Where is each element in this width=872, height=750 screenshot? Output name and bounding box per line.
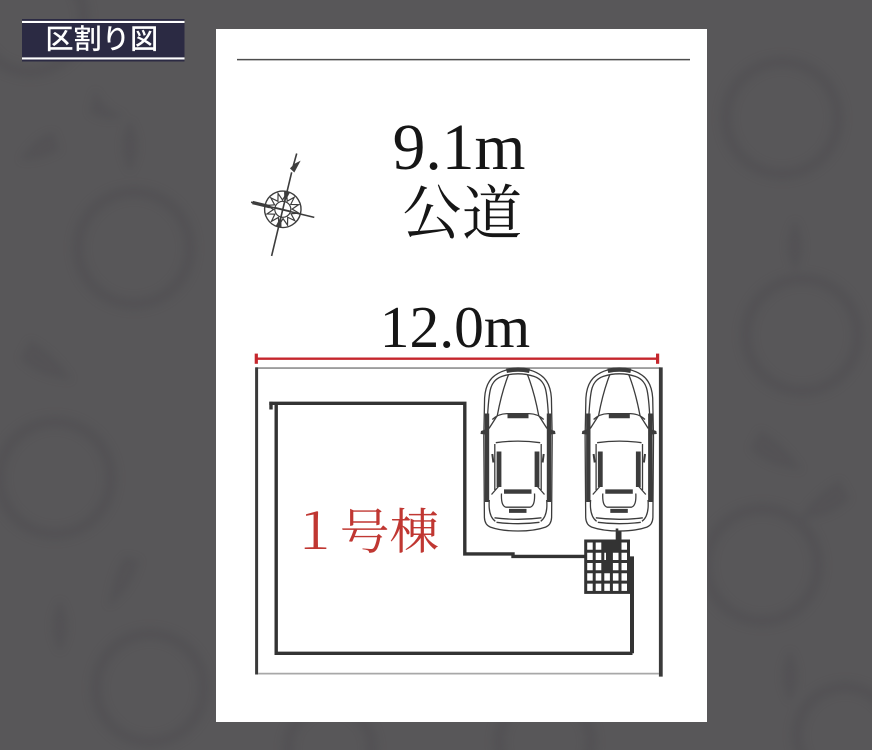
svg-text:12.0m: 12.0m <box>380 294 530 360</box>
svg-text:9.1m: 9.1m <box>393 112 526 184</box>
